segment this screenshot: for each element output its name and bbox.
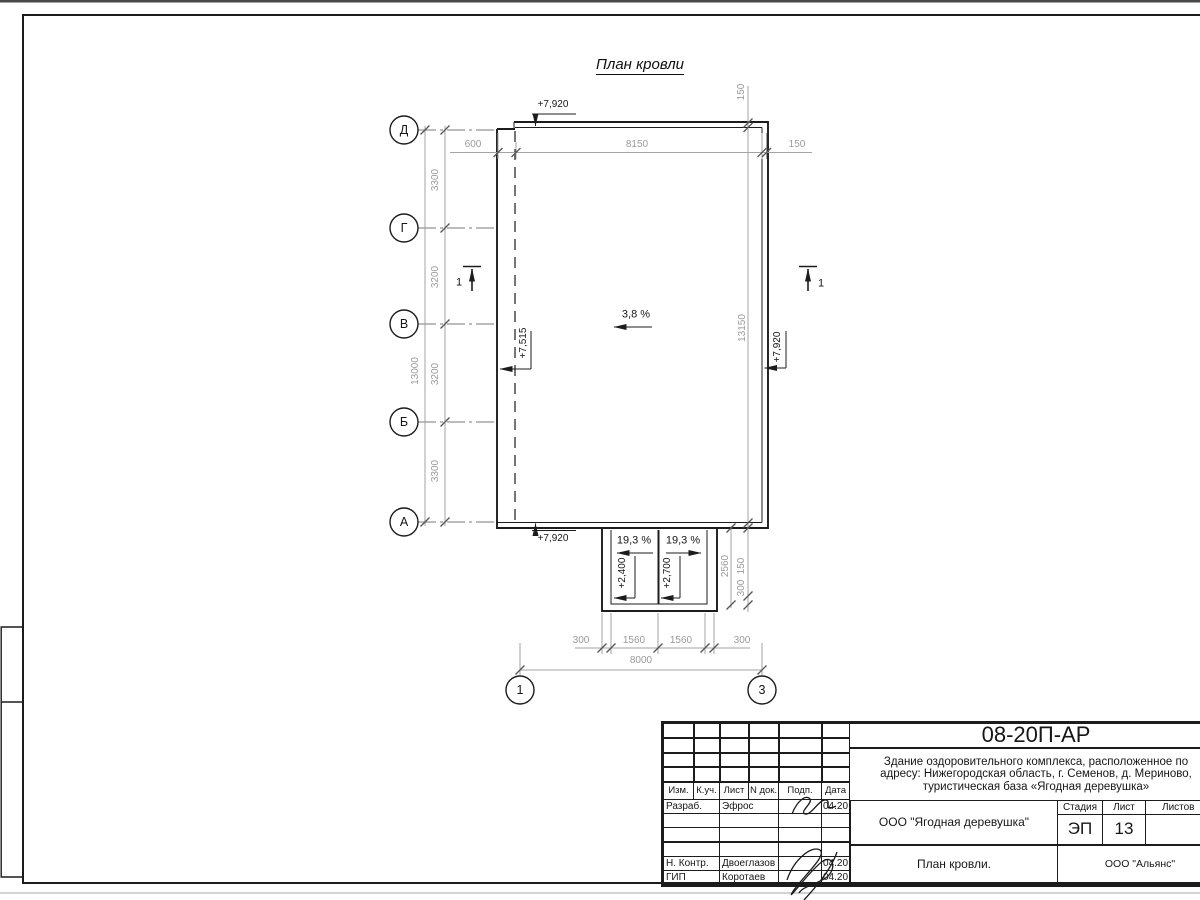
tb-organization: ООО "Альянс" <box>1057 844 1200 885</box>
revision-grid <box>663 723 850 782</box>
tb-client: ООО "Ягодная деревушка" <box>849 800 1058 845</box>
axis-bubble-3: 3 <box>759 684 766 697</box>
dim-label-left-3300a: 3300 <box>431 169 441 191</box>
dim-label-bot-1560l: 1560 <box>623 636 645 646</box>
tb-header-kuch: К.уч. <box>693 782 720 800</box>
tb-sheet-number: 13 <box>1102 814 1146 845</box>
elevation-mark-left: +7,515 <box>519 328 529 359</box>
tb-header-list: Лист <box>719 782 749 800</box>
dim-label-left-13000: 13000 <box>411 357 421 385</box>
dim-label-right-13150: 13150 <box>738 314 748 342</box>
dim-label-right-150-top: 150 <box>737 84 747 101</box>
tb-row-name <box>719 827 779 842</box>
tb-project-line3: туристическая база «Ягодная деревушка» <box>923 781 1149 794</box>
tb-row-date: 04.20 <box>821 856 850 871</box>
tb-project-line2: адресу: Нижегородская область, г. Семено… <box>880 768 1192 781</box>
tb-row-name <box>719 841 779 857</box>
tb-row-sign <box>778 856 822 871</box>
tb-header-izm: Изм. <box>663 782 694 800</box>
tb-row-name: Коротаев <box>719 870 779 885</box>
dim-label-left-3200a: 3200 <box>431 266 441 288</box>
axis-bubbles <box>390 116 776 704</box>
tb-row-sign <box>778 841 822 857</box>
tb-row-name: Эфрос <box>719 799 779 814</box>
tb-sheet-name: План кровли. <box>849 844 1058 885</box>
section-marks <box>463 267 817 292</box>
tb-sheets-total <box>1145 814 1200 845</box>
tb-row-sign <box>778 799 822 814</box>
axis-bubble-g: Г <box>401 222 408 235</box>
slope-label-main: 3,8 % <box>622 310 650 321</box>
tb-row-date: 04.20 <box>821 799 850 814</box>
section-mark-label-left: 1 <box>456 278 462 289</box>
tb-header-ndoc: N док. <box>748 782 779 800</box>
dimension-ticks <box>421 119 772 675</box>
tb-row-date <box>821 813 850 828</box>
dim-label-bot-300r: 300 <box>734 636 751 646</box>
tb-header-data: Дата <box>821 782 850 800</box>
tb-row-sign <box>778 813 822 828</box>
tb-sheet-label: Лист <box>1102 800 1146 815</box>
axis-bubble-1: 1 <box>517 684 524 697</box>
dim-label-bot-300l: 300 <box>573 636 590 646</box>
drawing-sheet: План кровли 600 8150 150 150 13150 2560 … <box>0 0 1200 900</box>
tb-project-name: Здание оздоровительного комплекса, распо… <box>849 748 1200 801</box>
tb-stage-label: Стадия <box>1057 800 1103 815</box>
tb-row-role <box>663 841 720 857</box>
elevation-mark-right: +7,920 <box>773 332 783 363</box>
axis-bubble-a: А <box>400 516 408 529</box>
tb-row-sign <box>778 827 822 842</box>
elevation-mark-annex-left: +2,400 <box>618 558 628 589</box>
dim-label-left-3300b: 3300 <box>431 460 441 482</box>
dim-label-right-300: 300 <box>737 580 747 597</box>
tb-row-role: Разраб. <box>663 799 720 814</box>
tb-row-date: 04.20 <box>821 870 850 885</box>
tb-row-date <box>821 841 850 857</box>
dim-label-bot-8000: 8000 <box>630 656 652 666</box>
tb-row-role: Н. Контр. <box>663 856 720 871</box>
tb-row-role: ГИП <box>663 870 720 885</box>
tb-project-line1: Здание оздоровительного комплекса, распо… <box>884 756 1188 769</box>
slope-arrows <box>614 327 701 553</box>
tb-sheets-label: Листов <box>1145 800 1200 815</box>
elevation-mark-annex-right: +2,700 <box>663 558 673 589</box>
axis-bubble-b: Б <box>400 416 408 429</box>
axis-bubble-v: В <box>400 318 408 331</box>
tb-header-podp: Подп. <box>778 782 822 800</box>
slope-label-annex-right: 19,3 % <box>666 536 700 547</box>
slope-label-annex-left: 19,3 % <box>617 536 651 547</box>
dim-label-right-2560: 2560 <box>721 555 731 577</box>
title-block: Изм. К.уч. Лист N док. Подп. Дата Разраб… <box>661 721 1200 887</box>
dim-label-bot-1560r: 1560 <box>670 636 692 646</box>
tb-stage-value: ЭП <box>1057 814 1103 845</box>
dim-label-left-3200b: 3200 <box>431 363 441 385</box>
dim-label-top-8150: 8150 <box>626 140 648 150</box>
axis-bubble-d: Д <box>400 124 408 137</box>
tb-row-sign <box>778 870 822 885</box>
dim-label-top-150: 150 <box>789 140 806 150</box>
drawing-title: План кровли <box>596 57 684 75</box>
elevation-mark-top: +7,920 <box>538 100 569 110</box>
tb-row-name: Двоеглазов <box>719 856 779 871</box>
dim-label-right-150-bot: 150 <box>737 558 747 575</box>
roof-outline <box>497 122 768 528</box>
tb-row-date <box>821 827 850 842</box>
elevation-mark-bottom: +7,920 <box>538 534 569 544</box>
tb-row-role <box>663 813 720 828</box>
section-mark-label-right: 1 <box>818 279 824 290</box>
tb-doc-number: 08-20П-АР <box>849 723 1200 749</box>
tb-row-name <box>719 813 779 828</box>
tb-row-role <box>663 827 720 842</box>
dim-label-top-600: 600 <box>465 140 482 150</box>
elevation-leaders <box>500 114 786 598</box>
